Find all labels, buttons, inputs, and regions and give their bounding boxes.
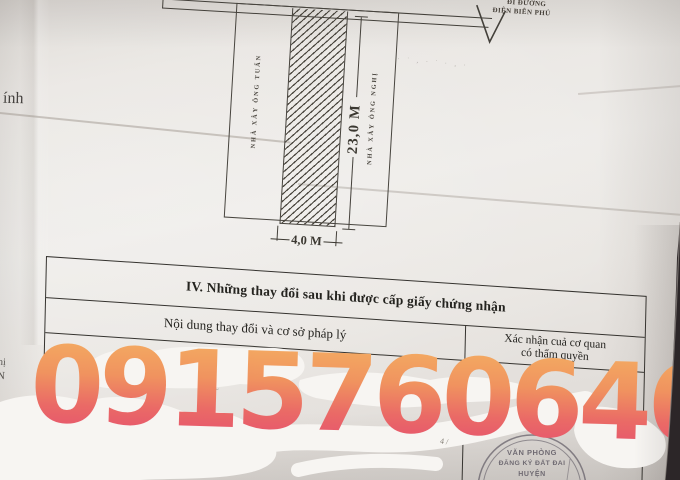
margin-text-fragment: N	[0, 370, 5, 382]
margin-text-fragment: nị	[0, 357, 6, 368]
phone-number-overlay: 0915760646	[29, 332, 680, 458]
width-dimension-label: 4,0 M	[289, 232, 324, 249]
stamp-text-line3: HUYỆN	[518, 469, 546, 478]
dimension-line-segment	[271, 238, 290, 240]
margin-text-fragment: ính	[3, 90, 24, 109]
dimension-line-segment	[324, 241, 343, 243]
width-dimension: 4,0 M	[270, 230, 343, 250]
dimension-tick	[342, 229, 355, 231]
land-certificate-photo: ính nị N ĐI ĐƯỜNG ĐIỆN BIÊN PHỦ NHÀ XÂY …	[0, 0, 680, 480]
faint-pencil-marks: · ˙ ‚ · ˙ · ‚ ·	[397, 57, 507, 73]
